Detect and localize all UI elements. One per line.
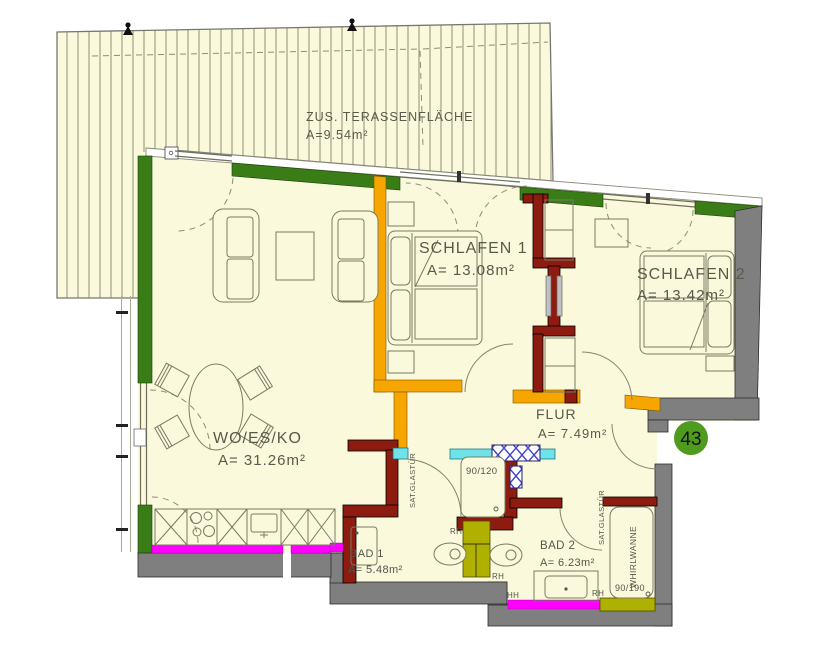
window-tick (116, 311, 128, 314)
bath1-area-label: A= 5.48m² (348, 564, 403, 576)
sliding-panel (557, 276, 562, 316)
bedroom2-area-label: A= 13.42m² (637, 287, 725, 304)
glass-door-label: SAT.GLASTÜR (597, 490, 606, 545)
washbasin (490, 544, 522, 566)
facade-corner-post (165, 147, 178, 159)
washbasin (434, 543, 466, 565)
rh-mark: RH (492, 572, 504, 581)
hinge-dot (356, 532, 359, 535)
terrace-anchor-icon (347, 18, 357, 31)
sofa (213, 209, 259, 302)
window-mullion (646, 193, 650, 204)
sliding-panel (546, 276, 551, 316)
shower-size-label: 90/120 (466, 466, 497, 477)
bedroom1-name-label: SCHLAFEN 1 (419, 240, 528, 257)
tub-label: WHIRLWANNE (628, 526, 638, 588)
window-tick (116, 424, 128, 427)
wall-break (283, 552, 291, 578)
bath2-area-label: A= 6.23m² (540, 557, 595, 569)
hall-name-label: FLUR (536, 406, 577, 422)
hall-area-label: A= 7.49m² (538, 426, 607, 441)
rh-mark: RH (450, 527, 462, 536)
basin-divider (463, 521, 490, 577)
window-tick (116, 455, 128, 458)
living-area-label: A= 31.26m² (218, 452, 306, 469)
hh-mark: HH (507, 591, 519, 600)
window-tick (116, 528, 128, 531)
rh-mark: RH (592, 589, 604, 598)
terrace-anchor-icon (123, 22, 133, 35)
glass-door-label: SAT.GLASTÜR (408, 453, 417, 508)
sofa (332, 211, 378, 302)
coffee-table (276, 232, 314, 280)
unit-number-badge: 43 (674, 421, 708, 455)
window-mullion (457, 171, 461, 182)
bedroom1-area-label: A= 13.08m² (427, 262, 515, 279)
terrace-area-label: A=9.54m² (306, 128, 369, 142)
floor-plan-page: ZUS. TERASSENFLÄCHE A=9.54m² WO/ES/KO A=… (0, 0, 829, 660)
glass-panel (510, 466, 522, 488)
bath2-name-label: BAD 2 (540, 540, 575, 552)
floor-plan-drawing: ZUS. TERASSENFLÄCHE A=9.54m² WO/ES/KO A=… (0, 0, 829, 660)
terrace-name-label: ZUS. TERASSENFLÄCHE (306, 110, 473, 124)
window-handle (134, 429, 146, 446)
bath1-name-label: BAD 1 (350, 548, 384, 560)
living-name-label: WO/ES/KO (213, 430, 302, 447)
unit-number-text: 43 (680, 429, 701, 450)
bedroom2-name-label: SCHLAFEN 2 (637, 266, 746, 283)
